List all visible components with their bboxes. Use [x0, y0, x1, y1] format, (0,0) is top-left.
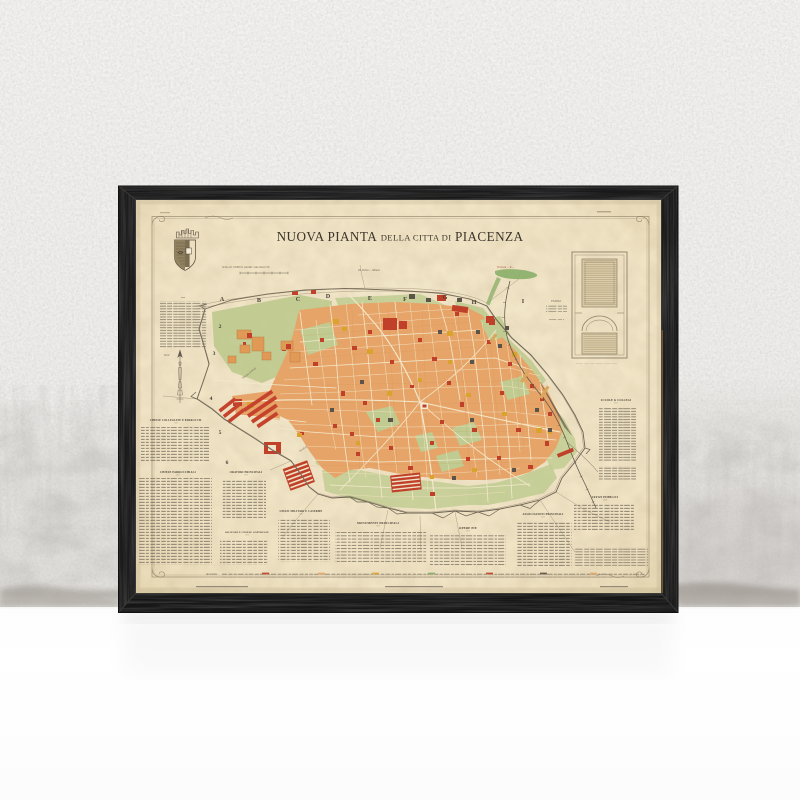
- svg-text:4: 4: [210, 396, 213, 402]
- svg-text:5: 5: [219, 430, 222, 436]
- svg-text:F: F: [403, 296, 407, 303]
- svg-text:Scala di 1:5000 il centim. v: Scala di 1:5000 il centim. vale metri 50: [222, 265, 270, 269]
- svg-text:C: C: [296, 296, 300, 303]
- svg-text:E: E: [368, 295, 372, 302]
- svg-text:Ferrovia — R —: Ferrovia — R —: [496, 266, 515, 269]
- svg-text:Nord: Nord: [163, 354, 170, 357]
- svg-text:3: 3: [213, 351, 216, 357]
- svg-text:H: H: [472, 299, 477, 306]
- svg-text:D: D: [326, 293, 331, 300]
- svg-text:Avvertenze: Avvertenze: [205, 573, 218, 576]
- svg-text:A: A: [220, 296, 225, 303]
- svg-text:Da Torino — Milano: Da Torino — Milano: [357, 269, 380, 272]
- svg-text:B: B: [257, 297, 261, 304]
- svg-text:G: G: [443, 294, 448, 301]
- svg-text:2: 2: [219, 324, 222, 330]
- svg-text:TEATRO: TEATRO: [551, 300, 561, 303]
- svg-text:6: 6: [226, 460, 229, 466]
